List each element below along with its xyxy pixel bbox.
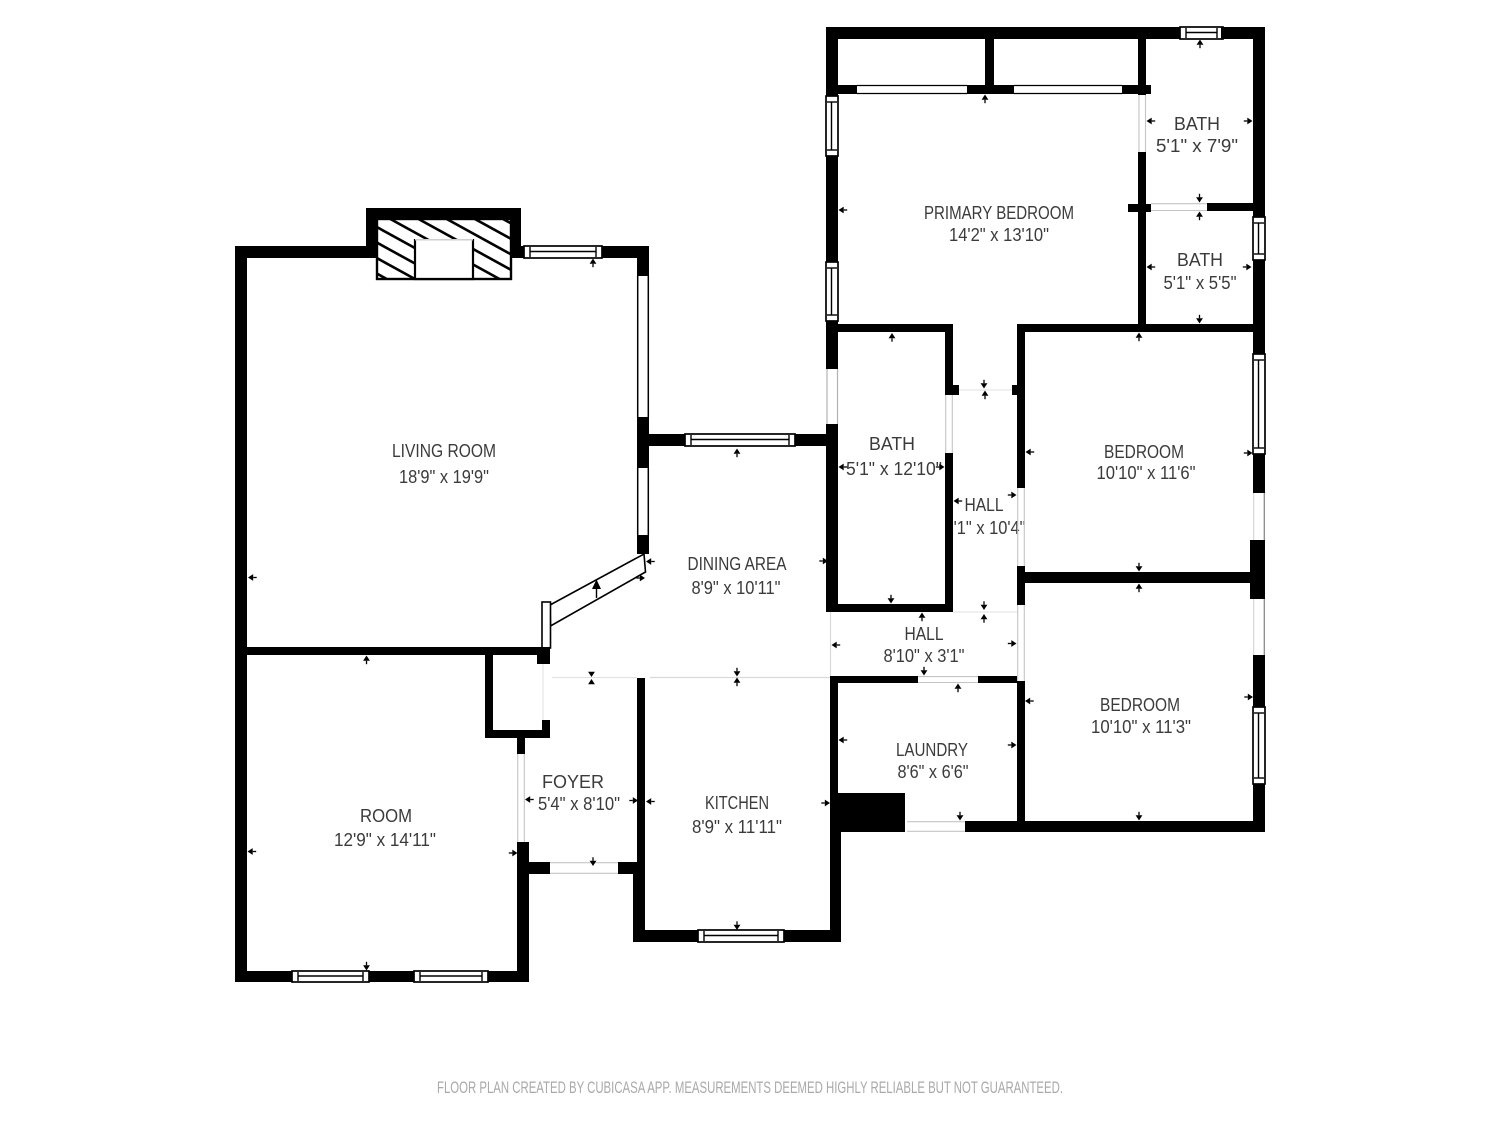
svg-text:FLOOR PLAN CREATED BY CUBICASA: FLOOR PLAN CREATED BY CUBICASA APP. MEAS… — [437, 1078, 1063, 1097]
svg-text:BATH: BATH — [869, 433, 915, 454]
svg-text:5'1" x 5'5": 5'1" x 5'5" — [1164, 272, 1237, 293]
svg-text:18'9" x 19'9": 18'9" x 19'9" — [399, 466, 489, 487]
svg-text:BEDROOM: BEDROOM — [1100, 694, 1180, 715]
svg-text:8'6" x 6'6": 8'6" x 6'6" — [898, 761, 969, 782]
svg-text:8'9" x 11'11": 8'9" x 11'11" — [692, 816, 782, 837]
svg-text:DINING AREA: DINING AREA — [688, 553, 788, 574]
svg-text:LAUNDRY: LAUNDRY — [896, 739, 968, 760]
svg-text:10'10" x 11'3": 10'10" x 11'3" — [1091, 716, 1191, 737]
svg-text:LIVING ROOM: LIVING ROOM — [392, 440, 496, 461]
svg-text:BEDROOM: BEDROOM — [1104, 441, 1184, 462]
svg-text:12'9" x 14'11": 12'9" x 14'11" — [334, 829, 436, 850]
svg-text:PRIMARY BEDROOM: PRIMARY BEDROOM — [924, 202, 1074, 223]
svg-text:FOYER: FOYER — [542, 771, 604, 792]
svg-text:5'4" x 8'10": 5'4" x 8'10" — [538, 793, 620, 814]
svg-text:5'1" x 10'4": 5'1" x 10'4" — [945, 517, 1026, 538]
svg-text:BATH: BATH — [1177, 249, 1223, 270]
svg-text:KITCHEN: KITCHEN — [705, 792, 769, 813]
svg-text:5'1" x 12'10": 5'1" x 12'10" — [846, 458, 942, 479]
svg-text:HALL: HALL — [905, 623, 944, 644]
svg-text:ROOM: ROOM — [360, 805, 412, 826]
svg-text:5'1" x 7'9": 5'1" x 7'9" — [1156, 135, 1238, 156]
svg-text:8'9" x 10'11": 8'9" x 10'11" — [692, 577, 781, 598]
svg-text:10'10" x 11'6": 10'10" x 11'6" — [1097, 462, 1196, 483]
svg-text:14'2" x 13'10": 14'2" x 13'10" — [949, 224, 1049, 245]
svg-text:BATH: BATH — [1174, 113, 1220, 134]
svg-text:HALL: HALL — [965, 494, 1004, 515]
svg-text:8'10" x 3'1": 8'10" x 3'1" — [884, 645, 965, 666]
